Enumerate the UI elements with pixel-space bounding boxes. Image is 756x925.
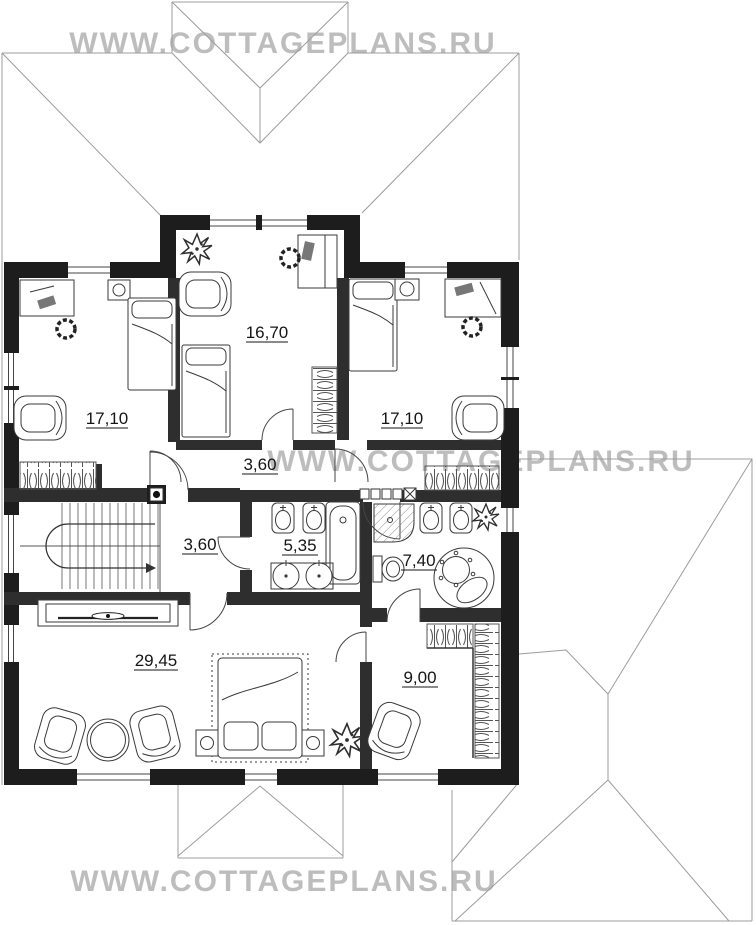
window: [245, 769, 277, 785]
plant-icon: [473, 504, 499, 530]
room-label-wardrobe: 9,00: [403, 668, 436, 687]
armchair: [32, 705, 89, 767]
room-label-bedroom-top-right: 17,10: [381, 409, 424, 428]
single-bed: [349, 279, 397, 371]
nightstand: [395, 279, 419, 300]
desk-chair: [281, 249, 299, 267]
desk: [20, 280, 74, 316]
desk: [445, 279, 501, 317]
desk: [298, 235, 337, 288]
double-bed: [212, 654, 308, 762]
wardrobe-hangers: [427, 624, 499, 758]
floor-plan-drawing: WWW.COTTAGEPLANS.RU WWW.COTTAGEPLANS.RU …: [0, 0, 756, 925]
nightstand: [108, 280, 130, 300]
desk-chair: [57, 320, 75, 338]
staircase: [20, 502, 160, 592]
room-label-bathroom: 5,35: [283, 536, 316, 555]
armchair: [364, 699, 423, 763]
hall-closet-hangers: [425, 466, 499, 490]
armchair: [452, 396, 504, 440]
window: [405, 262, 447, 278]
window: [4, 353, 19, 386]
room-label-hall-upper: 3,60: [243, 455, 276, 474]
window: [378, 769, 438, 785]
window: [210, 215, 307, 230]
shower: [374, 504, 414, 542]
plant-icon: [331, 724, 364, 757]
sink: [450, 503, 472, 533]
single-bed: [128, 298, 176, 390]
window: [501, 508, 519, 532]
room-label-bedroom-top-center: 16,70: [246, 323, 289, 342]
desk-chair: [463, 318, 481, 336]
room-label-hall-stairs: 3,60: [183, 535, 216, 554]
jacuzzi: [434, 548, 494, 608]
tv-console: [38, 600, 178, 626]
window: [68, 262, 110, 278]
window: [77, 769, 150, 785]
sink: [272, 503, 294, 533]
nightstand: [302, 730, 324, 756]
room-label-master-bathroom: 7,40: [402, 551, 435, 570]
vent-ducts: [360, 488, 416, 500]
floor-plan-page: WWW.COTTAGEPLANS.RU WWW.COTTAGEPLANS.RU …: [0, 0, 756, 925]
watermarks: WWW.COTTAGEPLANS.RU WWW.COTTAGEPLANS.RU …: [69, 27, 694, 898]
nightstand: [196, 730, 218, 756]
plant-icon: [182, 234, 212, 264]
window: [501, 347, 519, 377]
window: [4, 515, 19, 573]
washbasin: [273, 560, 299, 589]
room-label-bedroom-top-left: 17,10: [86, 409, 129, 428]
sink: [420, 503, 442, 533]
watermark-top: WWW.COTTAGEPLANS.RU: [69, 27, 496, 60]
room-label-master-bedroom: 29,45: [135, 651, 178, 670]
single-bed: [182, 345, 230, 437]
armchair: [127, 703, 182, 764]
watermark-bottom: WWW.COTTAGEPLANS.RU: [70, 865, 497, 898]
roof-porch-gable: [178, 785, 343, 858]
closet-hangers: [20, 462, 96, 489]
sink: [303, 503, 325, 533]
armchair: [14, 396, 66, 440]
window: [4, 625, 19, 662]
armchair: [179, 272, 231, 316]
chimney: [147, 485, 166, 504]
toilet: [373, 556, 404, 582]
round-table: [87, 719, 129, 761]
radiator: [312, 367, 337, 433]
